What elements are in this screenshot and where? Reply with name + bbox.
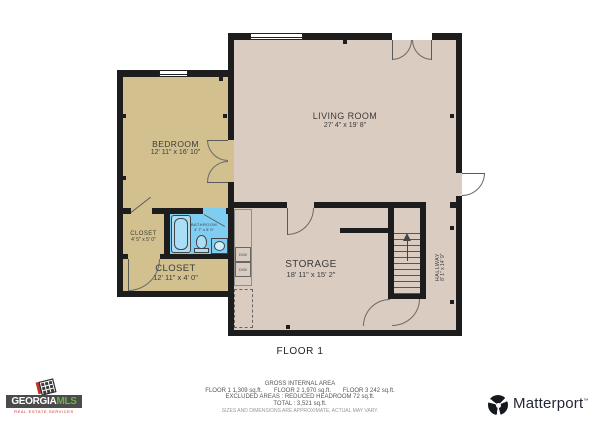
room-dims: 4' 5" x 5' 0" [123, 238, 164, 244]
storage-label: STORAGE 18' 11" x 15' 2" [234, 259, 388, 280]
pinwheel-center [496, 403, 501, 408]
room-dims: 4' 7" x 5' 0" [180, 228, 228, 233]
floor3-area: FLOOR 3 242 sq.ft. [343, 388, 395, 394]
bedroom-label: BEDROOM 12' 11" x 16' 10" [123, 139, 228, 157]
wall-living-top [228, 33, 250, 40]
wall-tick [343, 40, 347, 44]
wall-storage-bottom [228, 330, 462, 336]
floor1-area: FLOOR 1 1,309 sq.ft. [205, 388, 262, 394]
house-icon-sign [39, 378, 57, 395]
toilet-tank [194, 248, 209, 253]
living-room-label: LIVING ROOM 27' 4" x 19' 8" [234, 111, 456, 130]
living-room-window [250, 33, 303, 40]
georgia-mls-tagline: REAL ESTATE SERVICES [6, 409, 82, 414]
stair-up-arrow-icon [403, 233, 411, 241]
matterport-label: Matterport [513, 395, 583, 412]
room-dims: 12' 11" x 16' 10" [123, 149, 228, 157]
wall-tick [219, 77, 223, 81]
window-mullion [251, 37, 302, 38]
exterior-right-door-leaf [462, 173, 485, 174]
stair-direction-line [407, 241, 408, 261]
brand-suffix-text: MLS [56, 396, 76, 407]
wall-bathroom-bottom [117, 254, 128, 259]
doorway-patch [228, 140, 234, 182]
toilet [196, 235, 207, 249]
living-room-entry-door-leaf [392, 40, 393, 60]
hallway-label: HALLWAY 8' 1" x 14' 9" [426, 208, 456, 330]
wall-bedroom-bottom [226, 208, 234, 214]
wall-right-exterior [456, 33, 462, 173]
matterport-logo: Matterport™ [486, 392, 598, 418]
brand-text: GEORGIA [11, 396, 56, 407]
room-dims: 8' 1" x 14' 9" [441, 206, 447, 328]
wall-tick [122, 176, 126, 180]
room-dims: 18' 11" x 15' 2" [234, 271, 388, 280]
matterport-pinwheel-icon [488, 395, 508, 415]
georgia-mls-logo: GEORGIAMLS REAL ESTATE SERVICES [6, 378, 82, 420]
wall-bedroom-bottom [117, 208, 131, 214]
wall-closet-bottom [117, 291, 234, 297]
doorway-patch [203, 208, 226, 214]
sink-basin [214, 241, 225, 251]
room-dims: 12' 11" x 4' 0" [123, 274, 228, 283]
sink-vanity [211, 238, 228, 254]
wall-closet-bathroom-divider [164, 214, 170, 254]
wall-bathroom-bottom [160, 254, 234, 259]
wall-tick [286, 325, 290, 329]
matterport-wordmark: Matterport™ [513, 395, 589, 412]
trademark-mark: ™ [583, 398, 588, 404]
living-room-entry-door-leaf [431, 40, 432, 60]
room-name: LIVING ROOM [234, 111, 456, 122]
bathtub [171, 215, 191, 253]
bathroom-label: BATHROOM 4' 7" x 5' 0" [180, 223, 228, 232]
floor2-area: FLOOR 2 1,970 sq.ft. [274, 388, 331, 394]
floor-title: FLOOR 1 [200, 346, 400, 358]
mechanical-dashed-box [234, 289, 253, 328]
wall-tick [223, 114, 227, 118]
room-name: BEDROOM [123, 139, 228, 149]
room-dims: 27' 4" x 19' 8" [234, 122, 456, 130]
closet-long-label: CLOSET 12' 11" x 4' 0" [123, 263, 228, 283]
exterior-right-door-arc [462, 173, 485, 196]
living-to-storage-door-leaf [287, 208, 288, 235]
wall-living-bottom [228, 202, 287, 208]
hallway-label-rotated: HALLWAY 8' 1" x 14' 9" [435, 206, 447, 328]
closet-small-label: CLOSET 4' 5" x 5' 0" [123, 231, 164, 244]
bedroom-window [159, 70, 188, 77]
bedroom-double-door-leaf [207, 182, 228, 183]
wall-tick [122, 114, 126, 118]
georgia-mls-wordmark: GEORGIAMLS [6, 395, 82, 408]
wall-storage-stub [340, 228, 388, 233]
wall-right-exterior [456, 196, 462, 336]
window-mullion [160, 74, 187, 75]
floorplan-page: D/W D/W BEDROOM 12' 11" x 16' 10" LIVING… [0, 0, 600, 422]
gross-internal-area-title: GROSS INTERNAL AREA [0, 381, 600, 388]
wall-living-top [303, 33, 392, 40]
wall-living-bottom [314, 202, 426, 208]
georgia-mls-house-icon [34, 378, 60, 395]
wall-bedroom-bottom [152, 208, 203, 214]
